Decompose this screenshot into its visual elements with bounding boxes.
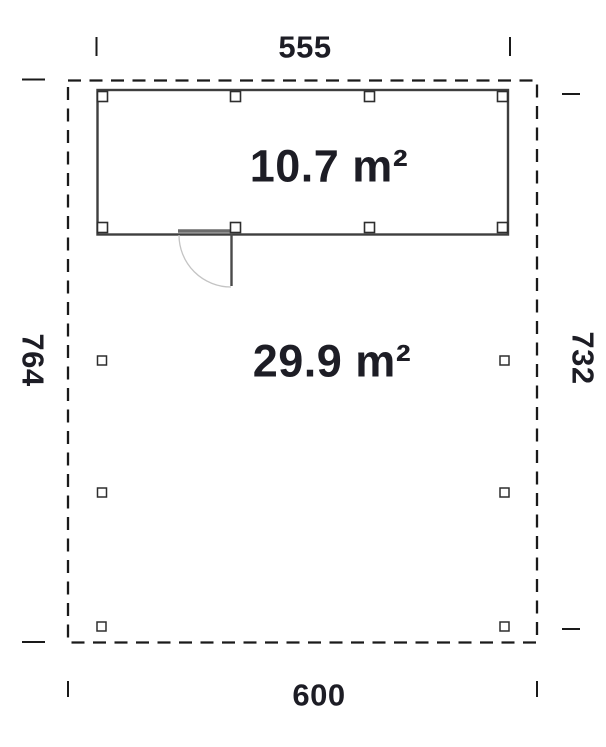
post-marker: [231, 92, 241, 102]
post-marker: [498, 92, 508, 102]
dimension-label-bottom: 600: [292, 678, 345, 713]
post-marker: [365, 223, 375, 233]
dimension-label-right: 732: [566, 331, 601, 384]
area-label-lower-area: 29.9 m²: [253, 336, 412, 387]
post-marker: [500, 356, 509, 365]
post-marker: [365, 92, 375, 102]
area-label-upper-room: 10.7 m²: [250, 141, 409, 192]
post-marker: [98, 488, 107, 497]
dimension-label-top: 555: [278, 30, 331, 65]
post-marker: [98, 356, 107, 365]
post-marker: [231, 223, 241, 233]
post-grid-open-area: [97, 356, 509, 631]
dimension-label-left: 764: [16, 333, 51, 386]
door-swing-arc: [179, 235, 231, 287]
post-marker: [98, 223, 108, 233]
post-marker: [97, 622, 106, 631]
post-marker: [500, 622, 509, 631]
floor-plan-drawing: 555 600 764 732 10.7 m² 29.9 m²: [0, 0, 606, 747]
post-marker: [498, 223, 508, 233]
post-marker: [98, 92, 108, 102]
post-marker: [500, 488, 509, 497]
floor-plan-canvas: 555 600 764 732 10.7 m² 29.9 m²: [0, 0, 606, 747]
